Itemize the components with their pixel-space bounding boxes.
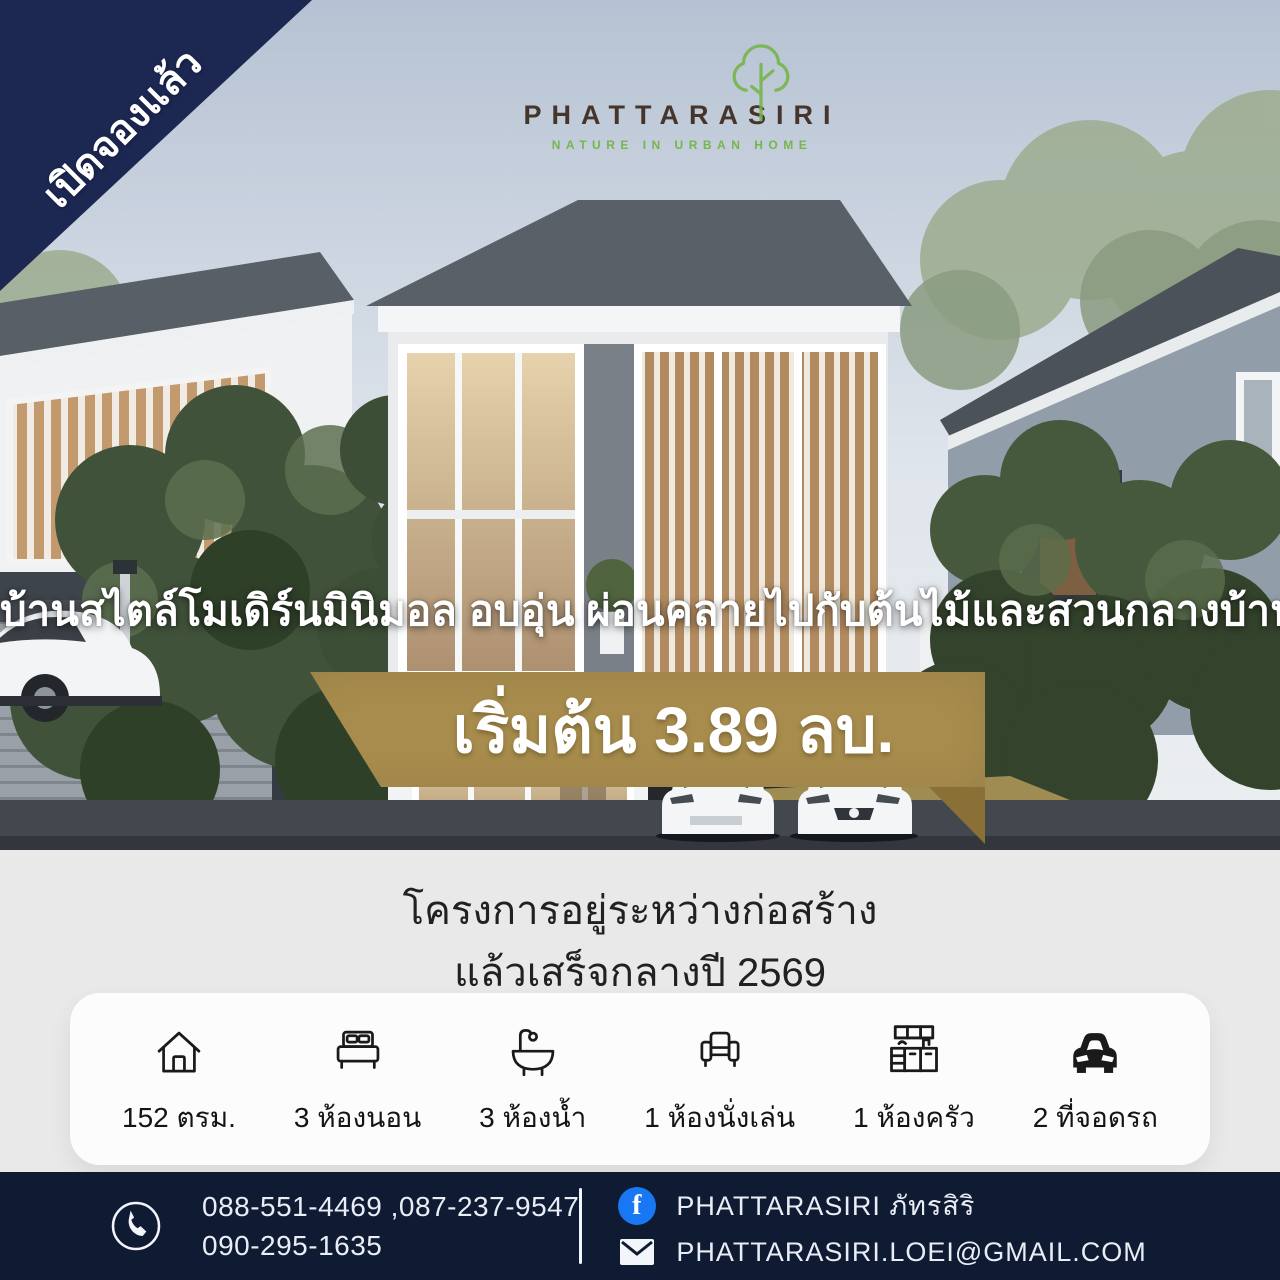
phone-numbers: 088-551-4469 ,087-237-9547 090-295-1635 [202,1187,579,1265]
phone-line-1: 088-551-4469 ,087-237-9547 [202,1187,579,1226]
bathtub-icon [502,1018,564,1082]
status-section: โครงการอยู่ระหว่างก่อสร้าง แล้วเสร็จกลาง… [0,880,1280,1004]
feature-bathrooms: 3 ห้องน้ำ [479,1018,586,1140]
feature-area: 152 ตรม. [122,1018,236,1140]
phone-contact[interactable]: 088-551-4469 ,087-237-9547 090-295-1635 [0,1187,579,1265]
price-banner: เริ่มต้น 3.89 ลบ. [310,672,985,787]
headline: บ้านสไตล์โมเดิร์นมินิมอล อบอุ่น ผ่อนคลาย… [0,578,1280,644]
feature-label: 3 ห้องนอน [294,1096,421,1140]
brand-tagline: NATURE IN URBAN HOME [472,138,892,152]
brand-logo: PHATTARASIRI NATURE IN URBAN HOME [472,34,892,152]
feature-label: 2 ที่จอดรถ [1033,1096,1158,1140]
facebook-icon: f [618,1187,656,1225]
price-text: เริ่มต้น 3.89 ลบ. [401,679,895,781]
real-estate-poster: เปิดจองแล้ว PHATTARASIRI NATURE IN URBAN… [0,0,1280,1280]
feature-label: 1 ห้องนั่งเล่น [644,1096,795,1140]
sofa-icon [690,1018,750,1082]
email-contact[interactable]: PHATTARASIRI.LOEI@GMAIL.COM [618,1236,1146,1268]
feature-card: 152 ตรม. 3 ห้องนอน [70,993,1210,1165]
brand-name: PHATTARASIRI [472,100,892,131]
feature-living-room: 1 ห้องนั่งเล่น [644,1018,795,1140]
feature-kitchen: 1 ห้องครัว [853,1018,975,1140]
status-line1: โครงการอยู่ระหว่างก่อสร้าง [0,880,1280,942]
footer: 088-551-4469 ,087-237-9547 090-295-1635 … [0,1172,1280,1280]
feature-label: 152 ตรม. [122,1096,236,1140]
house-render-photo: เปิดจองแล้ว PHATTARASIRI NATURE IN URBAN… [0,0,1280,850]
facebook-name: PHATTARASIRI ภัทรสิริ [676,1184,975,1227]
facebook-contact[interactable]: f PHATTARASIRI ภัทรสิริ [618,1184,1146,1227]
phone-line-2: 090-295-1635 [202,1226,579,1265]
car-icon [1064,1018,1126,1082]
feature-parking: 2 ที่จอดรถ [1033,1018,1158,1140]
tree-icon [724,34,798,128]
kitchen-icon [883,1018,945,1082]
house-icon [150,1018,208,1082]
feature-bedrooms: 3 ห้องนอน [294,1018,421,1140]
feature-label: 1 ห้องครัว [853,1096,975,1140]
phone-icon [110,1200,162,1252]
feature-label: 3 ห้องน้ำ [479,1096,586,1140]
envelope-icon [618,1236,656,1268]
email-address: PHATTARASIRI.LOEI@GMAIL.COM [676,1237,1146,1268]
social-contacts: f PHATTARASIRI ภัทรสิริ PHATTARASIRI.LOE… [582,1184,1146,1268]
bed-icon [326,1018,390,1082]
